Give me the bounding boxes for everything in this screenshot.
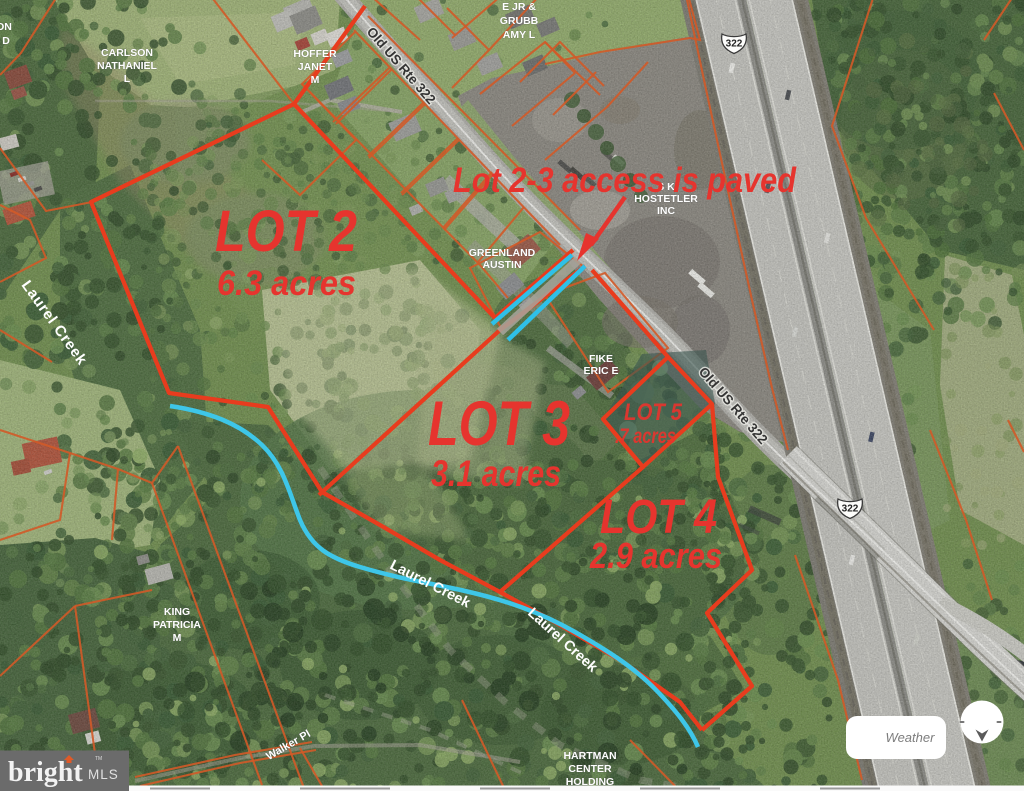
svg-text:ERIC E: ERIC E	[583, 365, 618, 377]
svg-text:M: M	[173, 632, 182, 644]
svg-text:LOT 3: LOT 3	[428, 389, 570, 459]
svg-text:6.3 acres: 6.3 acres	[217, 264, 356, 303]
svg-text:TM: TM	[95, 756, 102, 762]
svg-text:.7 acres: .7 acres	[615, 425, 676, 448]
svg-text:HARTMAN: HARTMAN	[563, 750, 616, 762]
svg-text:CENTER: CENTER	[568, 763, 612, 775]
svg-text:JANET: JANET	[298, 61, 333, 73]
svg-text:D: D	[2, 35, 10, 47]
svg-text:AMY L: AMY L	[503, 29, 536, 41]
svg-text:GREENLAND: GREENLAND	[469, 247, 536, 259]
svg-text:2.9 acres: 2.9 acres	[589, 535, 722, 576]
svg-text:PATRICIA: PATRICIA	[153, 619, 201, 631]
svg-text:L: L	[124, 73, 131, 85]
svg-text:Weather: Weather	[886, 730, 936, 745]
svg-text:LOT 5: LOT 5	[624, 399, 683, 426]
svg-text:LOT 2: LOT 2	[215, 199, 357, 264]
svg-text:NATHANIEL: NATHANIEL	[97, 60, 157, 72]
svg-text:INC: INC	[657, 205, 676, 217]
svg-text:HOFFER: HOFFER	[293, 48, 337, 60]
svg-text:CARLSON: CARLSON	[101, 47, 153, 59]
svg-text:3.1 acres: 3.1 acres	[431, 453, 561, 494]
svg-text:KING: KING	[164, 606, 190, 618]
svg-text:E JR &: E JR &	[502, 1, 536, 13]
svg-text:ON: ON	[0, 21, 12, 33]
svg-text:M: M	[311, 74, 320, 86]
svg-text:Lot 2-3 access is paved: Lot 2-3 access is paved	[453, 161, 797, 200]
svg-text:322: 322	[842, 504, 859, 515]
svg-text:322: 322	[726, 39, 743, 50]
svg-text:AUSTIN: AUSTIN	[482, 259, 521, 271]
svg-text:MLS: MLS	[88, 767, 119, 782]
svg-text:GRUBB: GRUBB	[500, 15, 539, 27]
svg-text:FIKE: FIKE	[589, 353, 613, 365]
svg-text:bright: bright	[8, 757, 83, 788]
